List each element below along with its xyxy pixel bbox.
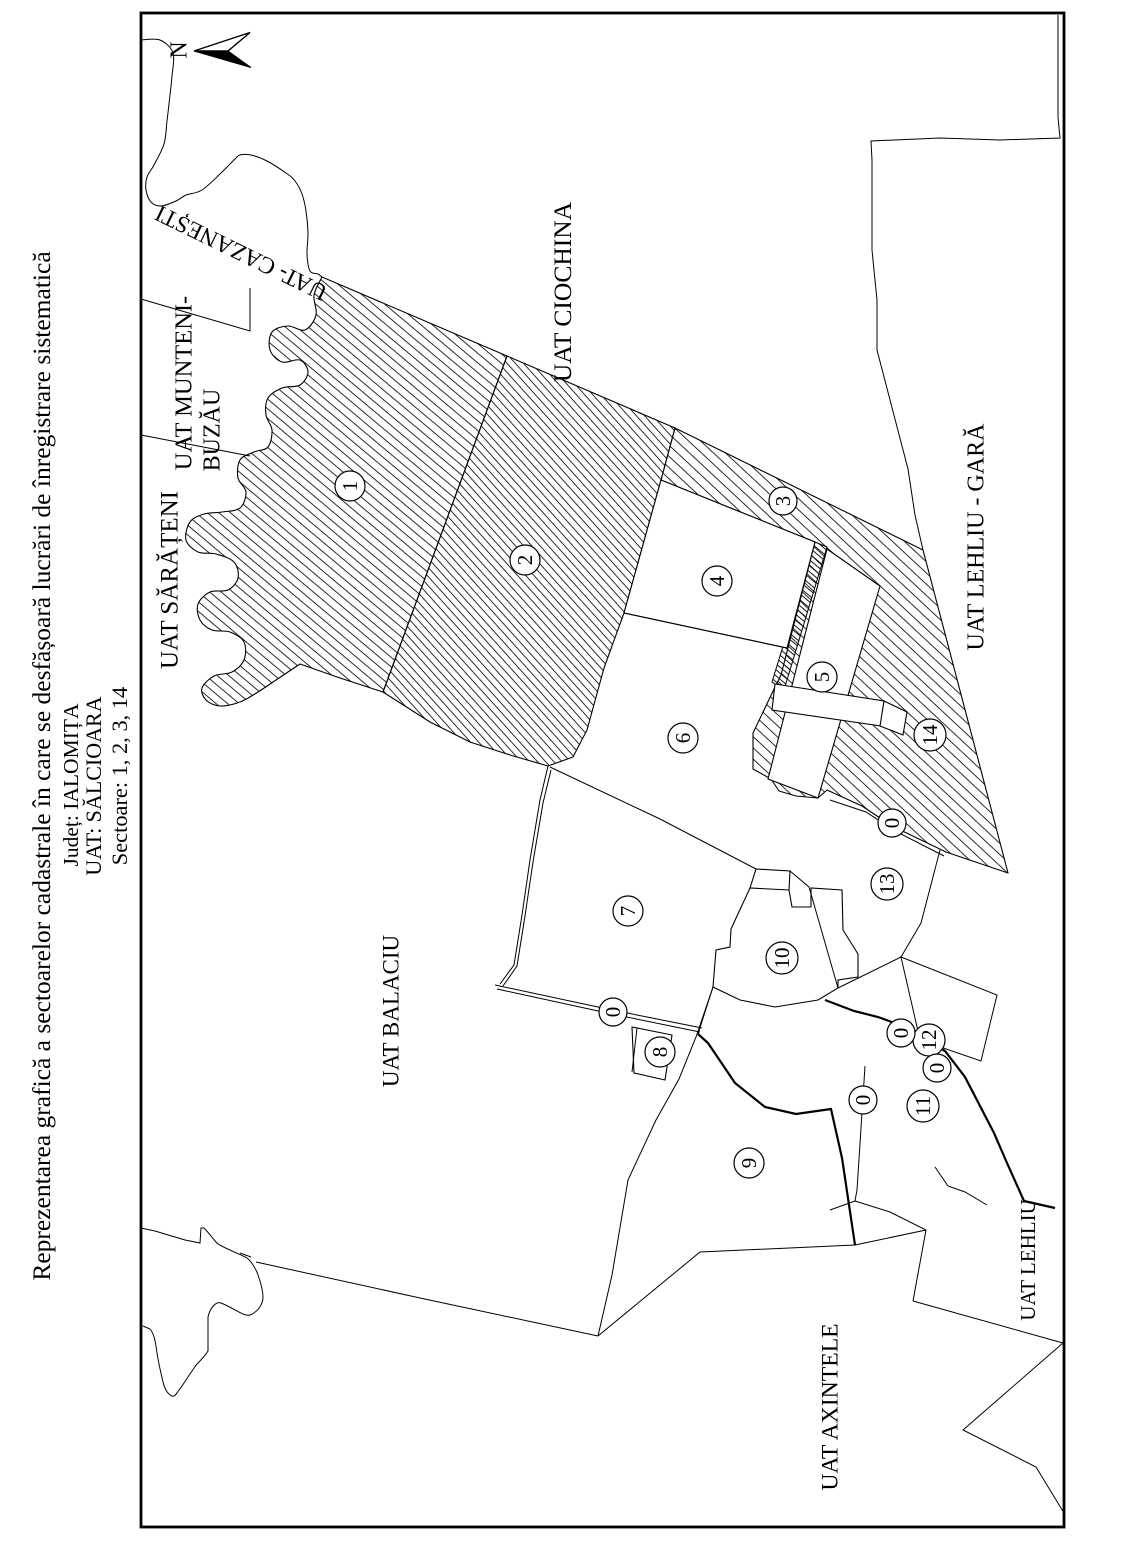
svg-text:0: 0 [601, 1007, 625, 1018]
svg-text:7: 7 [616, 906, 640, 917]
svg-text:Sectoare: 1, 2, 3, 14: Sectoare: 1, 2, 3, 14 [107, 687, 132, 865]
svg-text:UAT MUNTENI-: UAT MUNTENI- [171, 296, 198, 470]
svg-text:UAT SĂRĂȚENI: UAT SĂRĂȚENI [156, 491, 184, 669]
svg-text:5: 5 [810, 672, 834, 683]
svg-text:UAT LEHLIU: UAT LEHLIU [1016, 1199, 1040, 1321]
svg-text:UAT CIOCHINA: UAT CIOCHINA [548, 201, 577, 382]
svg-text:0: 0 [925, 1063, 949, 1074]
svg-text:8: 8 [648, 1047, 672, 1058]
svg-text:13: 13 [875, 874, 899, 895]
svg-text:0: 0 [851, 1095, 875, 1106]
svg-text:3: 3 [771, 496, 795, 507]
svg-text:UAT LEHLIU - GARĂ: UAT LEHLIU - GARĂ [964, 423, 990, 651]
svg-text:12: 12 [917, 1030, 941, 1051]
svg-text:10: 10 [770, 948, 794, 969]
svg-text:UAT AXINTELE: UAT AXINTELE [817, 1323, 843, 1490]
svg-text:0: 0 [880, 818, 904, 829]
svg-text:9: 9 [737, 1158, 761, 1169]
svg-text:Reprezentarea grafică a sectoa: Reprezentarea grafică a sectoarelor cada… [27, 251, 56, 1280]
svg-text:2: 2 [513, 555, 537, 566]
svg-text:UAT: SĂLCIOARA: UAT: SĂLCIOARA [81, 696, 106, 875]
svg-text:BUZĂU: BUZĂU [200, 389, 226, 472]
svg-text:4: 4 [705, 575, 729, 586]
svg-text:N: N [167, 41, 193, 58]
svg-text:0: 0 [889, 1028, 913, 1039]
svg-text:Județ: IALOMIȚA: Județ: IALOMIȚA [59, 703, 83, 866]
svg-text:14: 14 [918, 724, 942, 746]
svg-text:1: 1 [338, 481, 362, 492]
svg-text:UAT BALACIU: UAT BALACIU [378, 934, 403, 1087]
svg-text:11: 11 [911, 1096, 935, 1116]
svg-text:6: 6 [671, 733, 695, 744]
